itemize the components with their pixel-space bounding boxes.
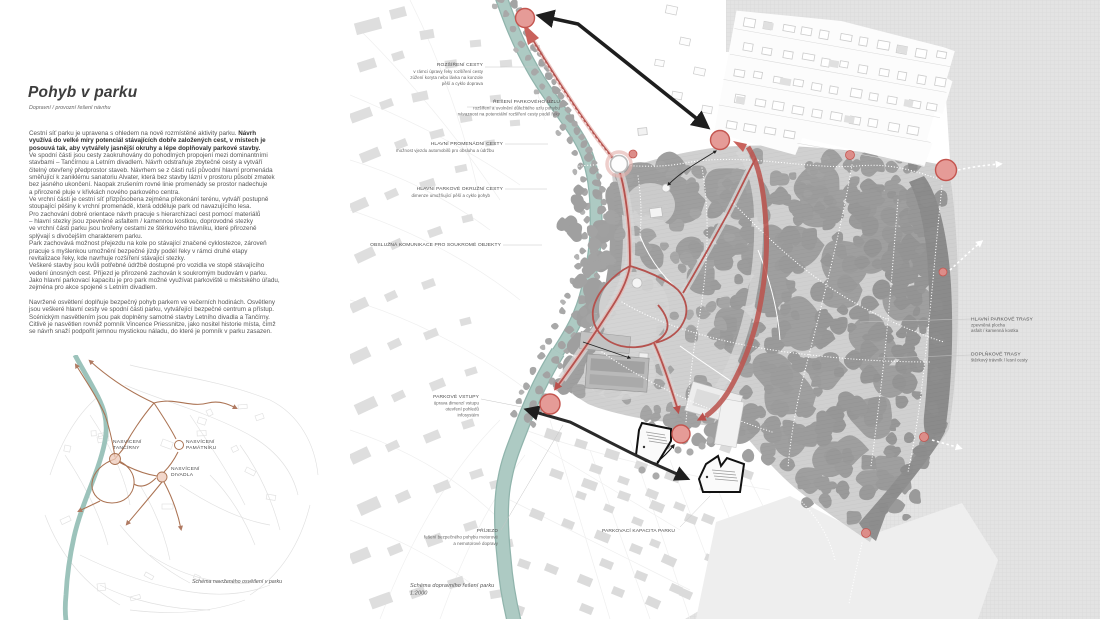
svg-text:DIVADLA: DIVADLA [171,472,194,478]
svg-text:ROZŠÍŘENÍ CESTY: ROZŠÍŘENÍ CESTY [437,60,484,68]
svg-text:dimenze umožňující pěší a cykl: dimenze umožňující pěší a cyklo pohyb [412,193,491,198]
svg-text:NASVÍCENÍ: NASVÍCENÍ [186,438,215,445]
svg-text:a nemotorové dopravy: a nemotorové dopravy [453,541,498,546]
svg-text:TANČÍRNY: TANČÍRNY [113,444,140,451]
svg-text:Schéma navrženého osvětlení v: Schéma navrženého osvětlení v parku [192,579,282,585]
svg-text:OBSLUŽNÁ KOMUNIKACE PRO SOUKRO: OBSLUŽNÁ KOMUNIKACE PRO SOUKROMÉ OBJEKTY [370,240,502,248]
svg-text:DOPLŇKOVÉ TRASY: DOPLŇKOVÉ TRASY [971,351,1021,358]
svg-text:pěší a cyklo doprava: pěší a cyklo doprava [442,81,484,86]
svg-text:Schéma dopravního řešení parku: Schéma dopravního řešení parku [410,583,494,589]
svg-text:PARKOVÉ VSTUPY: PARKOVÉ VSTUPY [433,393,480,400]
svg-text:PARKOVACÍ KAPACITA PARKU: PARKOVACÍ KAPACITA PARKU [602,527,675,534]
svg-text:asfalt / kamenná kostka: asfalt / kamenná kostka [971,328,1019,333]
svg-text:1:2000: 1:2000 [410,591,428,597]
svg-text:NASVÍCENÍ: NASVÍCENÍ [171,465,200,472]
svg-text:PAMÁTNÍKU: PAMÁTNÍKU [186,444,217,451]
svg-text:otevření pohledů: otevření pohledů [445,407,479,412]
svg-text:možnost vjezdu automobilů pro: možnost vjezdu automobilů pro obsluhu a … [396,148,494,153]
svg-text:HLAVNÍ PROMENÁDNÍ CESTY: HLAVNÍ PROMENÁDNÍ CESTY [431,140,504,147]
svg-text:řešení bezpečného pohybu motor: řešení bezpečného pohybu motorové [424,535,499,540]
svg-text:v rámci úpravy řeky rozšíření: v rámci úpravy řeky rozšíření cesty [413,69,483,74]
svg-text:rozšíření a uvolnění důležitéh: rozšíření a uvolnění důležitého uzlu poh… [473,106,560,111]
svg-text:štěrkový trávník / lesní cesty: štěrkový trávník / lesní cesty [971,358,1028,363]
svg-text:návaznost na potenciální rozší: návaznost na potenciální rozšíření cesty… [458,112,561,117]
svg-text:HLAVNÍ PARKOVÉ TRASY: HLAVNÍ PARKOVÉ TRASY [971,316,1034,323]
svg-text:úprava dimenzí vstupu: úprava dimenzí vstupu [434,401,480,406]
svg-text:zpevněná plocha: zpevněná plocha [971,323,1005,328]
svg-text:infosystém: infosystém [458,413,480,418]
svg-text:NASVÍCENÍ: NASVÍCENÍ [113,438,142,445]
svg-text:zúžení koryta nebo lávka na ko: zúžení koryta nebo lávka na konzole [410,75,483,80]
